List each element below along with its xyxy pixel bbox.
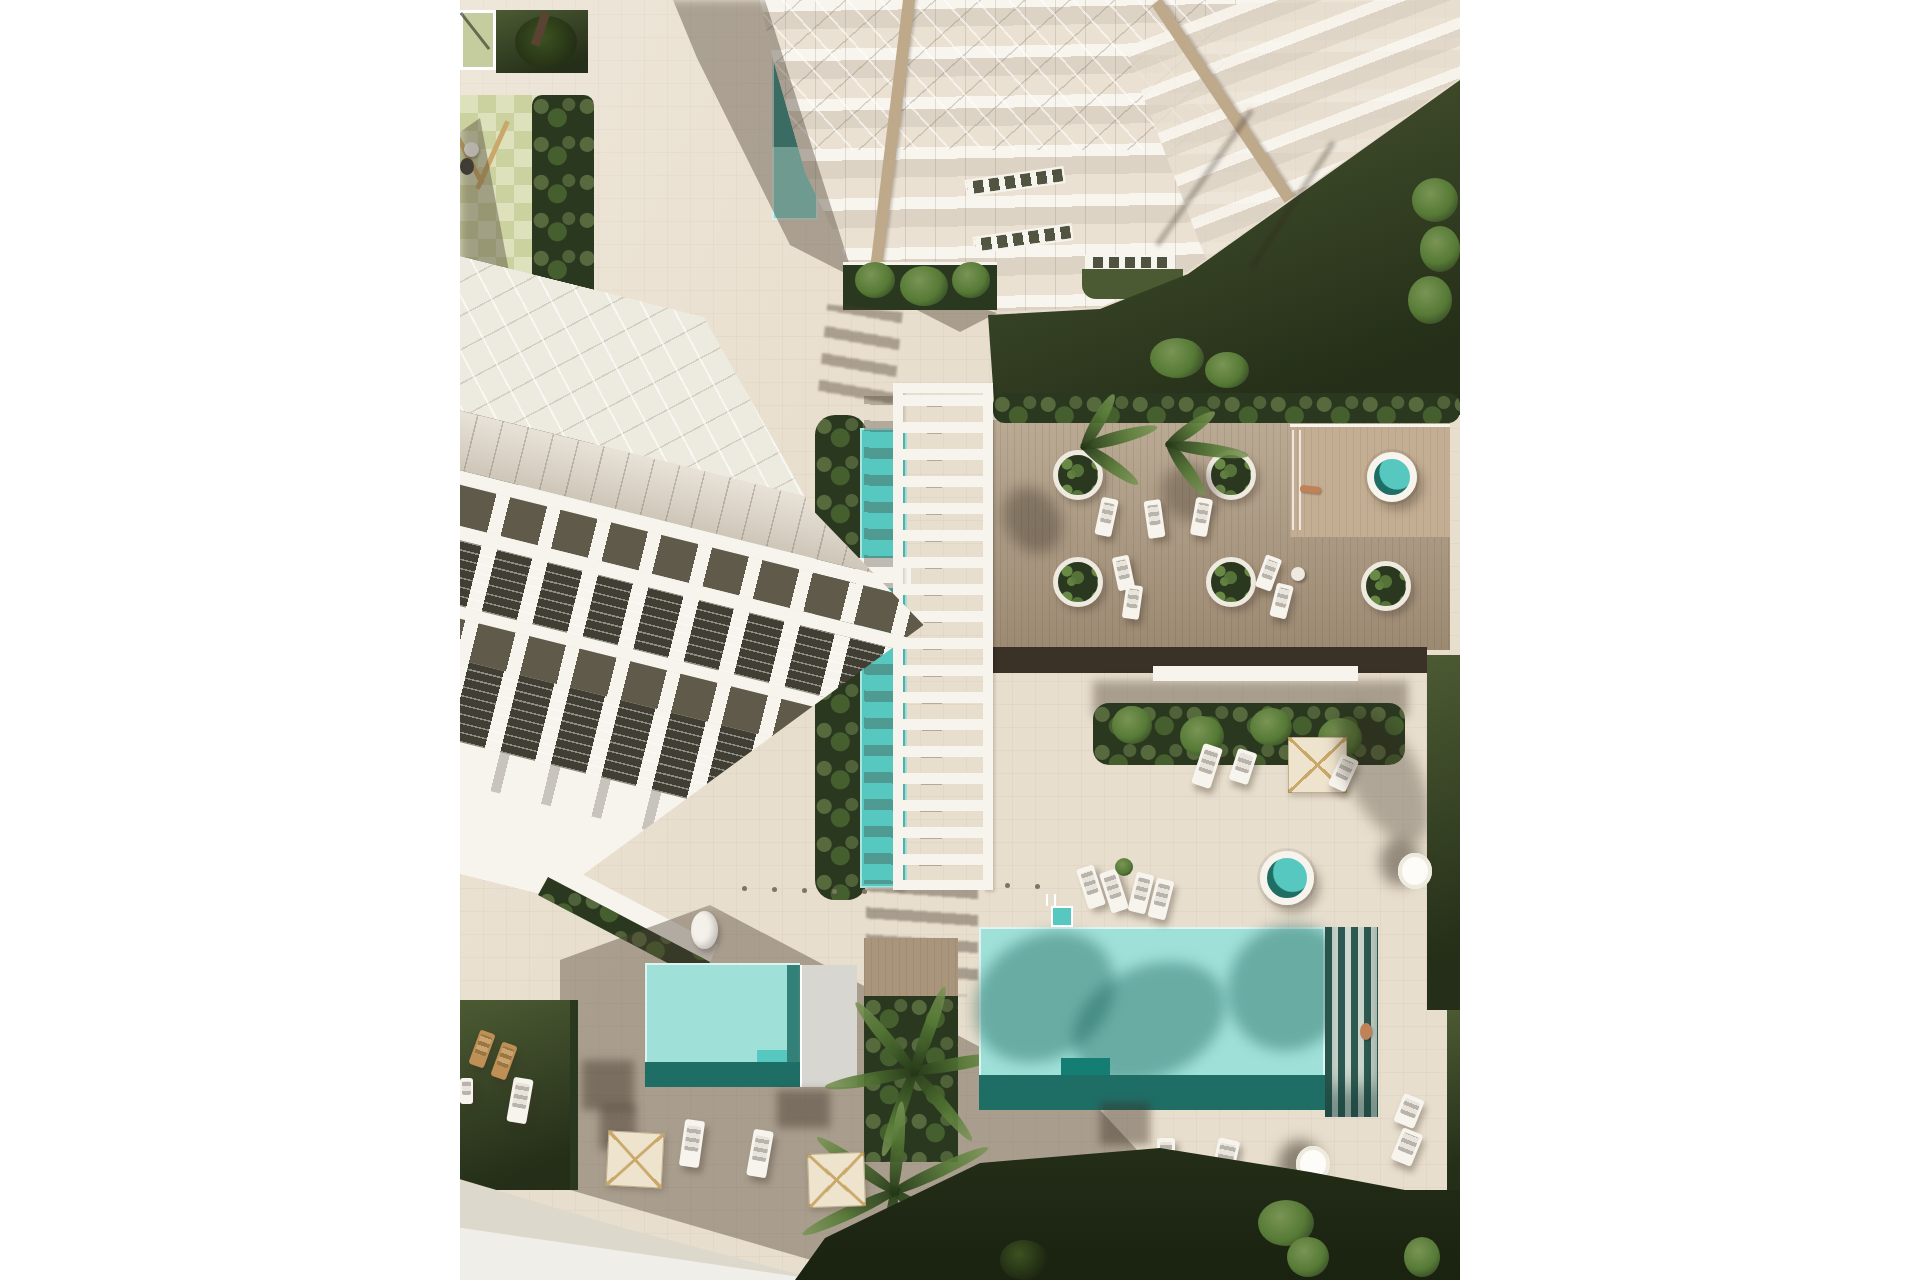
parasol-shadow: [582, 1060, 634, 1110]
kids-pool-shadow-band: [645, 1062, 800, 1087]
planter-palm-bush: [900, 266, 948, 306]
lounge-platform: [800, 965, 857, 1087]
balustrade-row: [972, 223, 1073, 254]
tropical-shrub: [1412, 178, 1458, 222]
deck-planter: [1206, 557, 1256, 607]
deck-top-hedgerow: [993, 393, 1460, 423]
aerial-render: [460, 0, 1460, 1280]
tropical-shrub: [1420, 226, 1460, 272]
white-round-planter: [691, 911, 718, 949]
tropical-shrub: [1150, 338, 1204, 378]
south-band-plant: [1287, 1237, 1329, 1277]
deck-back-wall: [1153, 666, 1358, 681]
path-light: [742, 886, 747, 891]
main-pool-slat-edge: [1325, 927, 1378, 1117]
parasol: [807, 1152, 866, 1208]
hedgerow-bush: [1250, 708, 1292, 746]
south-band-plant: [1404, 1237, 1440, 1277]
tropical-shrub: [1205, 352, 1249, 388]
south-band-plant: [1000, 1240, 1048, 1280]
deck-planter: [1053, 557, 1103, 607]
lounger: [1390, 1127, 1423, 1167]
lounger: [460, 1078, 473, 1104]
pool-ladder-icon: [1046, 894, 1056, 906]
grass-east-strip: [1427, 655, 1460, 1010]
lounger: [1076, 864, 1106, 910]
pergola: [893, 383, 993, 890]
path-light: [772, 887, 777, 892]
path-light: [1005, 883, 1010, 888]
deck-side-table: [1291, 567, 1305, 581]
courtyard-railing: [1085, 255, 1175, 270]
kids-pool-edge-dark: [787, 965, 800, 1087]
paving-spa: [1260, 851, 1314, 905]
main-pool-inner-step: [1061, 1058, 1110, 1075]
path-light: [862, 889, 867, 894]
tropical-shrub: [1408, 276, 1452, 324]
grass-east-strip: [1447, 1010, 1460, 1195]
parasol: [606, 1131, 665, 1189]
hedgerow-bush: [1112, 706, 1152, 744]
pergola-rungs: [901, 395, 985, 878]
main-pool: [979, 927, 1325, 1110]
parasol-shadow: [1100, 1102, 1150, 1145]
path-light: [802, 888, 807, 893]
potted-plant: [1115, 858, 1133, 876]
main-pool-top-step: [1051, 906, 1073, 927]
main-pool-shadow-band: [979, 1075, 1325, 1110]
spa-platform-steps: [1292, 430, 1306, 530]
planter-palm-bush: [855, 262, 895, 298]
parasol-shadow: [777, 1090, 830, 1128]
wicker-chair: [1398, 853, 1432, 889]
planter-palm-bush: [952, 262, 990, 298]
lounger: [1393, 1093, 1425, 1129]
balustrade-row: [964, 166, 1065, 197]
path-light: [832, 889, 837, 894]
person-swimming: [1360, 1023, 1372, 1040]
path-light: [1035, 884, 1040, 889]
deck-planter: [1361, 561, 1411, 611]
pergola-shadow-upper: [817, 304, 903, 407]
deck-spa: [1367, 452, 1417, 502]
kids-pool-step: [757, 1050, 787, 1062]
